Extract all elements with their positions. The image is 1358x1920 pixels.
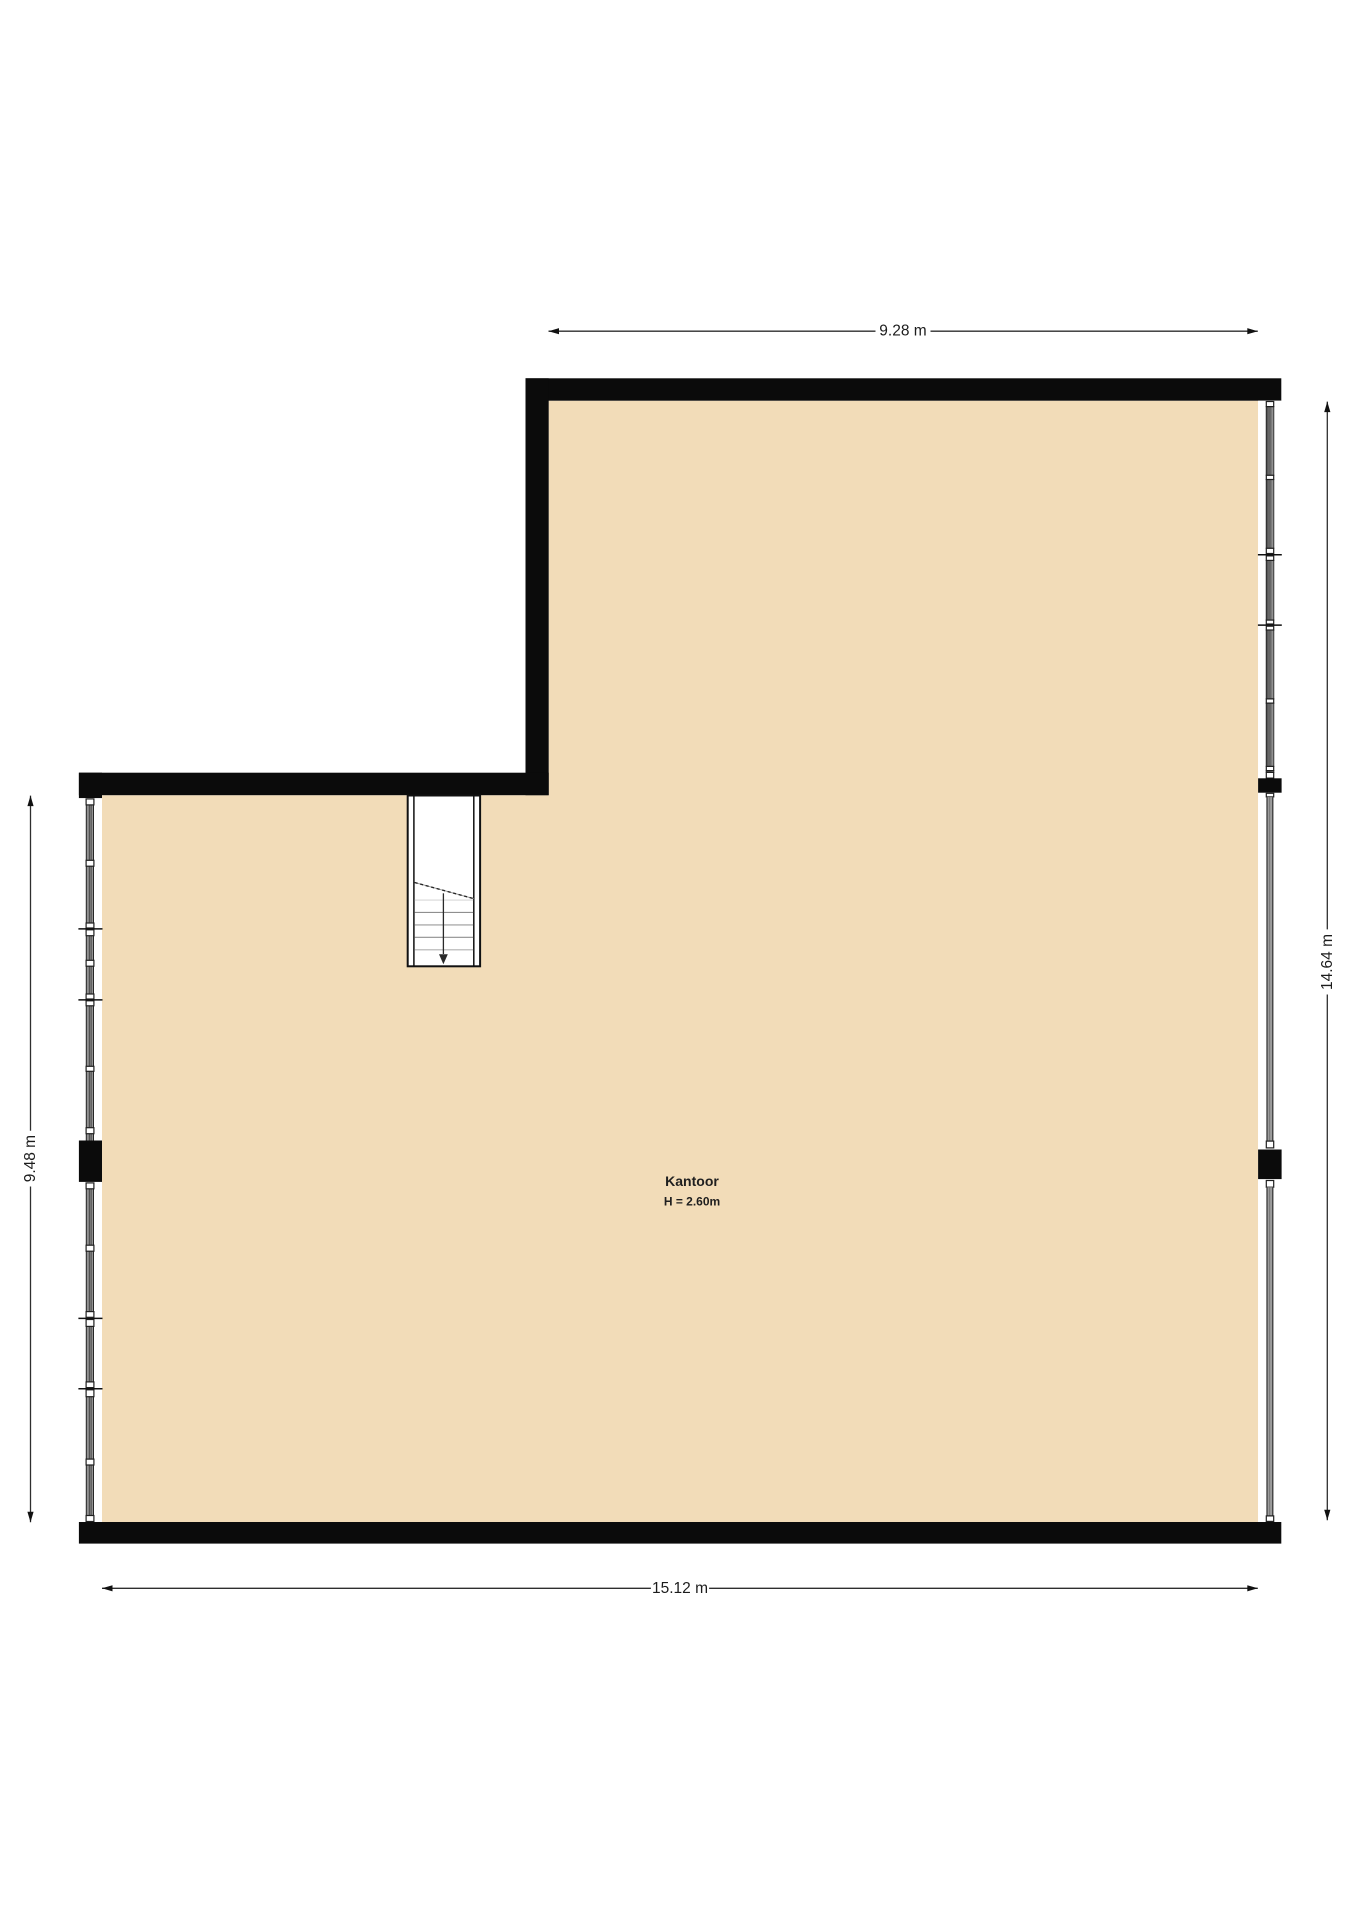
svg-text:Kantoor: Kantoor: [665, 1173, 719, 1189]
svg-text:15.12 m: 15.12 m: [652, 1580, 708, 1597]
svg-text:H = 2.60m: H = 2.60m: [664, 1194, 720, 1208]
svg-text:9.48 m: 9.48 m: [22, 1135, 39, 1182]
svg-text:14.64 m: 14.64 m: [1319, 934, 1336, 990]
svg-text:9.28 m: 9.28 m: [879, 323, 926, 340]
